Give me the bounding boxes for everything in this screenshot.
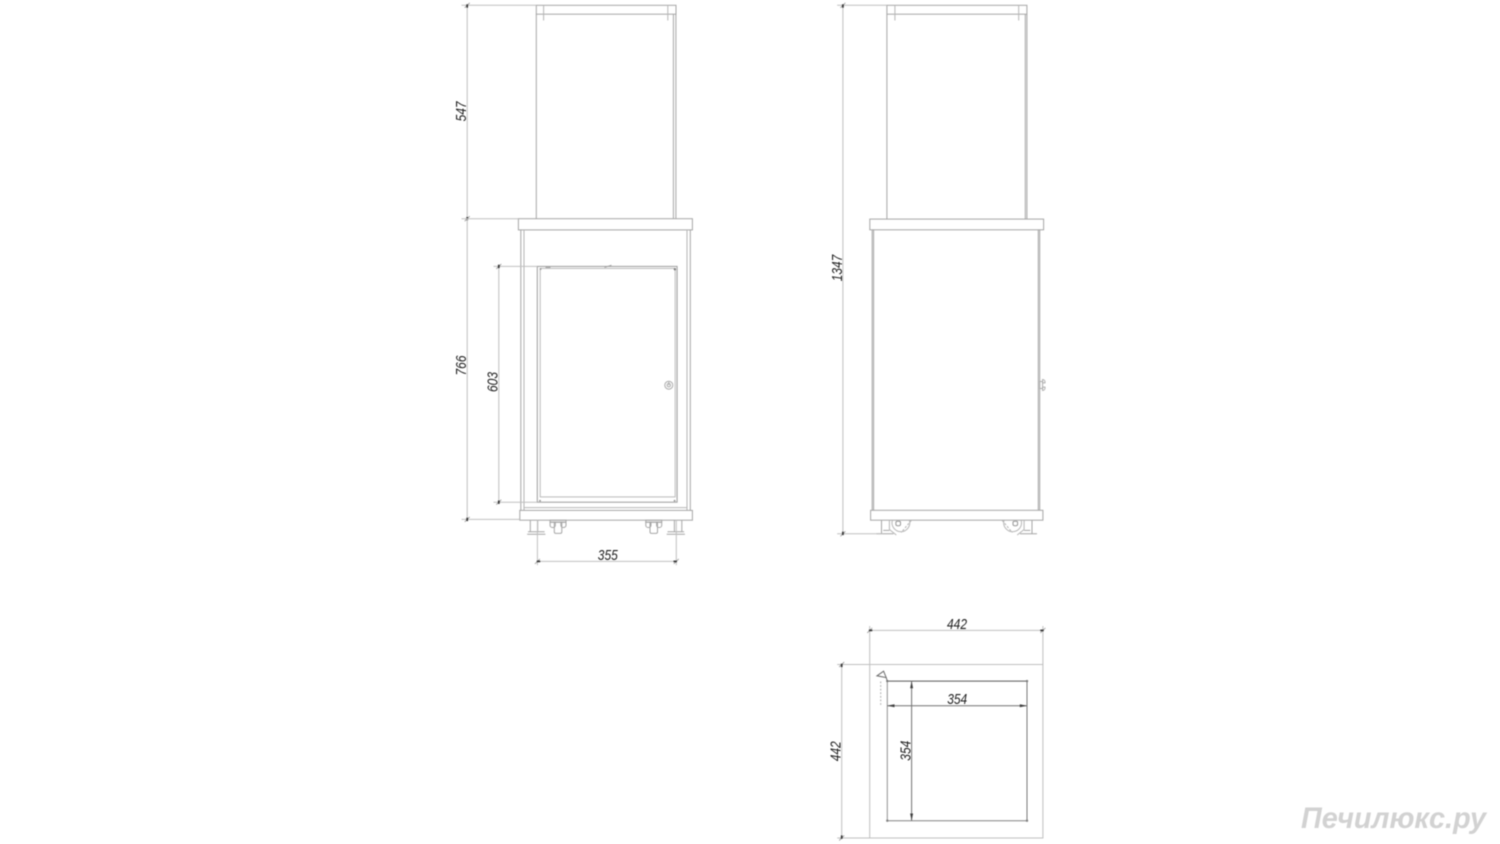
- svg-text:547: 547: [453, 101, 470, 122]
- svg-text:766: 766: [453, 355, 470, 376]
- svg-text:442: 442: [947, 616, 968, 633]
- svg-text:603: 603: [485, 371, 502, 392]
- svg-text:354: 354: [947, 691, 967, 708]
- svg-text:Печилюкс.ру: Печилюкс.ру: [1301, 802, 1487, 835]
- svg-text:355: 355: [598, 547, 619, 564]
- svg-text:354: 354: [897, 741, 914, 761]
- svg-text:1347: 1347: [829, 254, 846, 281]
- svg-text:442: 442: [828, 741, 845, 762]
